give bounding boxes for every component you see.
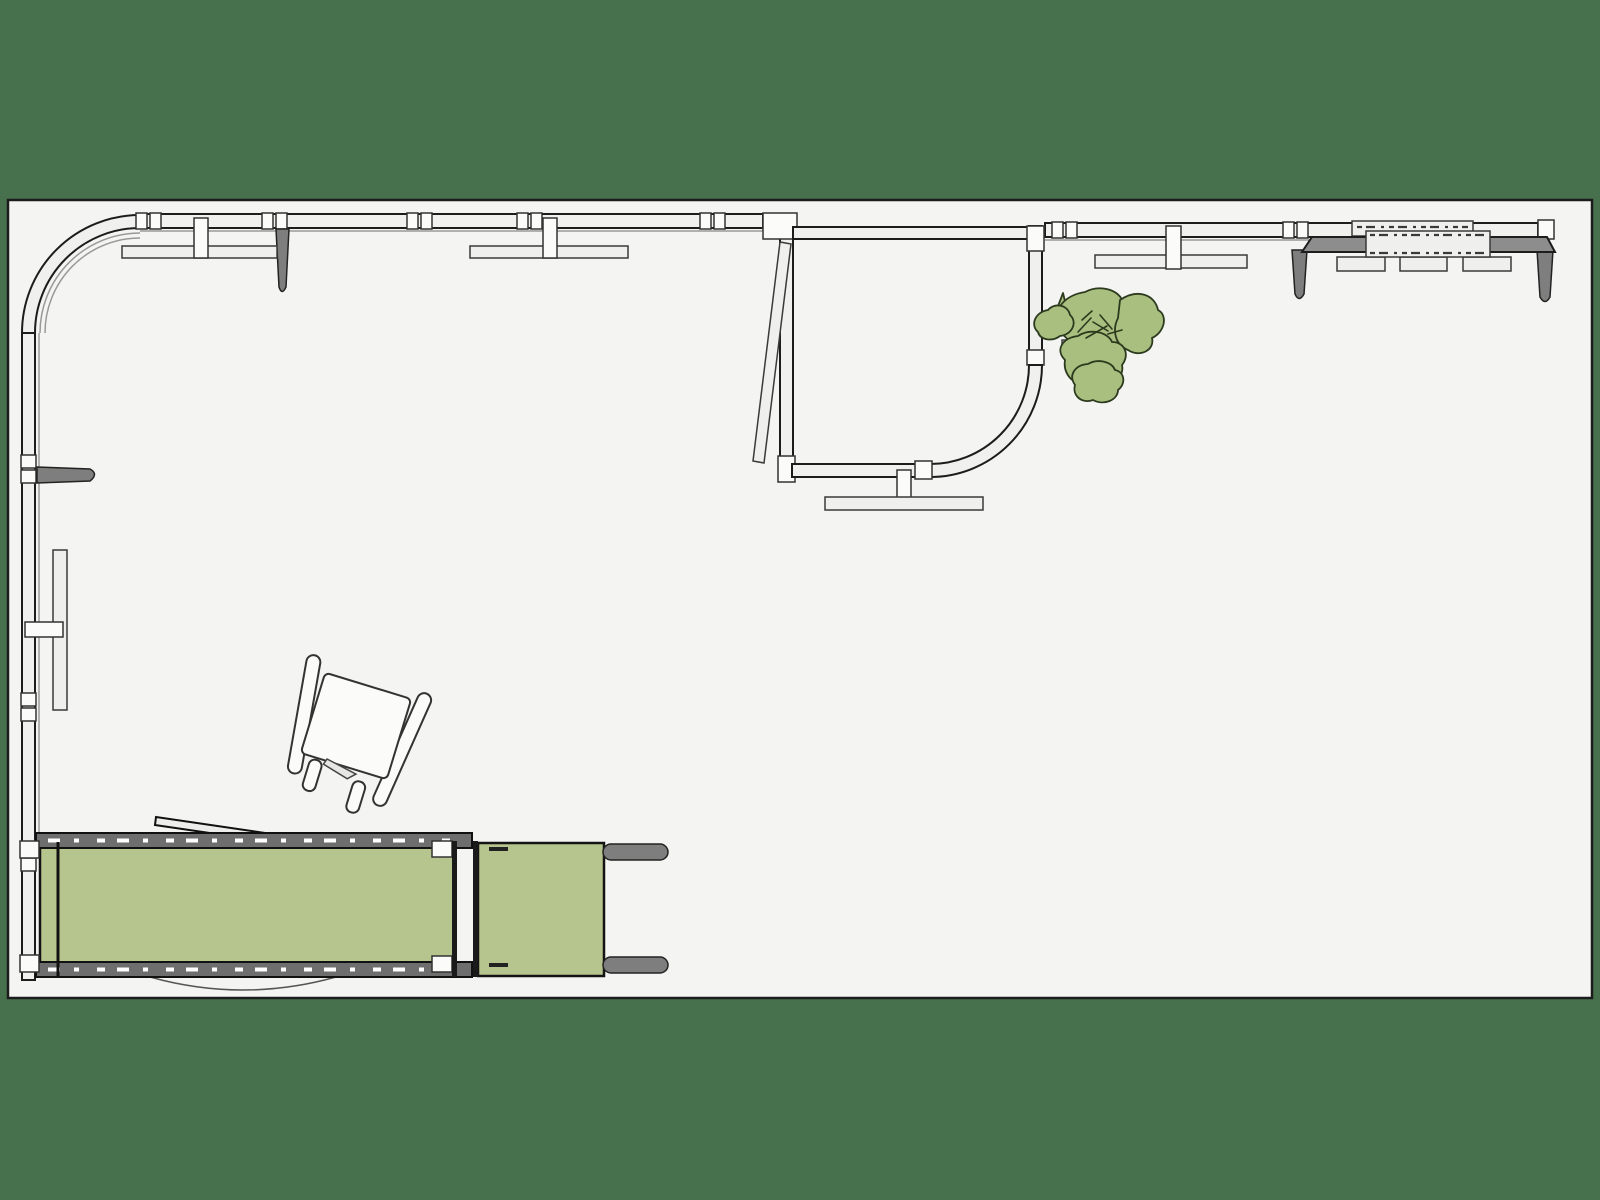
left-wall bbox=[22, 333, 35, 980]
desk-drawer-2 bbox=[1400, 257, 1447, 271]
daybed bbox=[20, 817, 668, 990]
daybed-arm-bar-bottom bbox=[603, 957, 668, 973]
left-wall-bracket bbox=[37, 467, 95, 483]
pod-junction-post bbox=[763, 213, 797, 239]
desk-drawer-3 bbox=[1463, 257, 1511, 271]
daybed-seat-tick-top bbox=[489, 847, 508, 851]
daybed-left-cap-top bbox=[20, 841, 39, 858]
daybed-divider-bar-2 bbox=[473, 841, 478, 977]
shelf-a-post bbox=[194, 218, 208, 258]
pod-right-wall-mid-block bbox=[1027, 350, 1044, 365]
desk-left-leg bbox=[1292, 250, 1307, 299]
pod-bench-top bbox=[825, 497, 983, 510]
daybed-seat-tick-bottom bbox=[489, 963, 508, 967]
pod-bottom-wall-end-block bbox=[915, 461, 932, 479]
daybed-right-cap-bottom bbox=[432, 956, 452, 972]
shelf-c-post bbox=[1166, 226, 1181, 269]
top-wall-left-segment bbox=[140, 214, 763, 228]
floor-plan-scene bbox=[0, 0, 1600, 1200]
daybed-arm-bar-top bbox=[603, 844, 668, 860]
desk-drawer-1 bbox=[1337, 257, 1385, 271]
desk-right-leg bbox=[1537, 250, 1553, 302]
pod-top-wall bbox=[793, 227, 1032, 239]
daybed-left-cap-bottom bbox=[20, 955, 39, 972]
viewport-canvas bbox=[0, 0, 1600, 1200]
left-shelf-post bbox=[25, 622, 63, 637]
daybed-divider-bar-1 bbox=[452, 841, 457, 977]
daybed-cushion-main bbox=[40, 847, 455, 963]
daybed-right-cap-top bbox=[432, 841, 452, 857]
pod-right-wall-top-block bbox=[1027, 226, 1044, 251]
shelf-b-post bbox=[543, 218, 557, 258]
daybed-cushion-seat bbox=[478, 843, 604, 976]
